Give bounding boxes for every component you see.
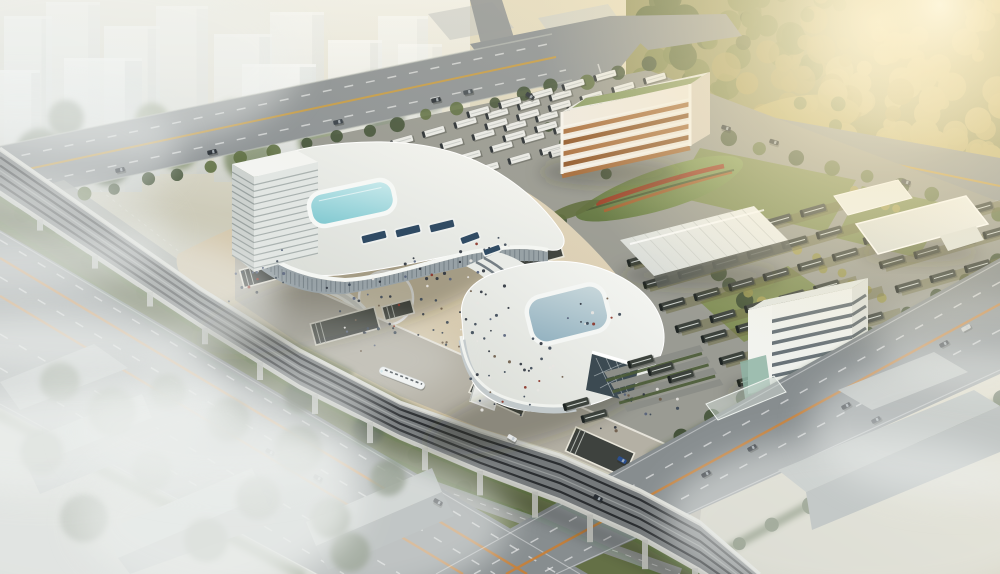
rendering-stage: [0, 0, 1000, 574]
warm-light-overlay: [0, 0, 1000, 574]
g-light: [0, 0, 1000, 574]
scene-root: [0, 0, 1000, 574]
